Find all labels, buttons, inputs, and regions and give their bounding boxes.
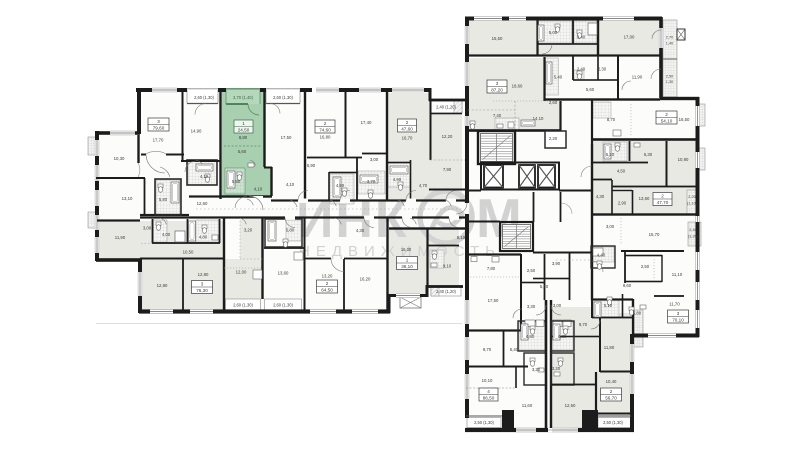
- svg-text:12,20: 12,20: [442, 134, 453, 139]
- svg-text:87,20: 87,20: [491, 88, 503, 93]
- svg-text:2,90: 2,90: [618, 201, 627, 206]
- svg-text:11,90: 11,90: [115, 235, 126, 240]
- svg-text:1: 1: [406, 257, 409, 262]
- svg-text:12,00: 12,00: [236, 270, 247, 275]
- svg-text:7,90: 7,90: [443, 167, 452, 172]
- svg-text:10,50: 10,50: [183, 250, 194, 255]
- svg-text:17,40: 17,40: [361, 120, 372, 125]
- svg-text:5,80: 5,80: [232, 179, 241, 184]
- svg-text:11,60: 11,60: [522, 403, 533, 408]
- svg-text:5,60: 5,60: [586, 87, 595, 92]
- svg-text:18,60: 18,60: [512, 84, 523, 89]
- svg-text:2,30: 2,30: [598, 67, 607, 72]
- svg-text:47,70: 47,70: [657, 200, 669, 205]
- svg-text:4,50: 4,50: [617, 169, 626, 174]
- svg-text:1,40: 1,40: [666, 42, 673, 46]
- svg-text:2: 2: [661, 193, 664, 198]
- svg-text:4,80: 4,80: [558, 334, 567, 339]
- svg-text:2: 2: [324, 121, 327, 126]
- svg-text:2,50 (1,30): 2,50 (1,30): [603, 420, 623, 425]
- svg-text:2: 2: [326, 281, 329, 286]
- svg-text:4,80: 4,80: [199, 235, 208, 240]
- svg-text:2,40: 2,40: [577, 67, 586, 72]
- svg-text:2,50: 2,50: [641, 264, 650, 269]
- svg-text:10,10: 10,10: [482, 378, 493, 383]
- svg-text:4,70: 4,70: [419, 183, 428, 188]
- svg-text:17,70: 17,70: [153, 138, 164, 143]
- svg-text:14,10: 14,10: [533, 116, 544, 121]
- svg-text:11,70: 11,70: [669, 302, 680, 307]
- svg-text:5,80: 5,80: [159, 197, 168, 202]
- svg-text:16,50: 16,50: [679, 117, 690, 122]
- svg-text:5,10: 5,10: [604, 303, 613, 308]
- svg-text:15,50: 15,50: [492, 36, 503, 41]
- svg-text:8,70: 8,70: [607, 117, 616, 122]
- svg-text:9,10: 9,10: [443, 264, 452, 269]
- svg-text:12,80: 12,80: [198, 272, 209, 277]
- svg-text:1,30: 1,30: [666, 80, 673, 84]
- svg-text:5,80: 5,80: [286, 228, 295, 233]
- svg-text:5,40: 5,40: [540, 284, 549, 289]
- svg-text:4,80: 4,80: [526, 334, 535, 339]
- svg-text:2: 2: [406, 120, 409, 125]
- svg-text:13,60: 13,60: [278, 271, 289, 276]
- svg-text:2,50: 2,50: [666, 75, 673, 79]
- svg-text:13,60: 13,60: [639, 196, 650, 201]
- svg-text:2,70: 2,70: [666, 36, 673, 40]
- svg-text:10,90: 10,90: [678, 157, 689, 162]
- svg-text:3,00: 3,00: [606, 224, 615, 229]
- svg-text:2,40: 2,40: [689, 228, 696, 232]
- svg-text:54,10: 54,10: [661, 119, 673, 124]
- svg-text:3: 3: [496, 81, 499, 86]
- svg-text:5,40: 5,40: [510, 347, 519, 352]
- svg-text:36,10: 36,10: [401, 264, 413, 269]
- svg-text:3,20: 3,20: [552, 366, 561, 371]
- svg-text:4,30: 4,30: [596, 194, 605, 199]
- svg-text:(1,20): (1,20): [688, 235, 699, 239]
- svg-text:12,50: 12,50: [565, 403, 576, 408]
- svg-text:4,00: 4,00: [162, 232, 171, 237]
- svg-text:4,30: 4,30: [356, 228, 365, 233]
- svg-text:2,70 (1,40): 2,70 (1,40): [233, 95, 253, 100]
- svg-text:4,40: 4,40: [597, 253, 606, 258]
- svg-text:74,60: 74,60: [319, 128, 331, 133]
- svg-text:(1,10): (1,10): [687, 202, 698, 206]
- svg-text:3,70: 3,70: [367, 179, 376, 184]
- svg-text:2,20: 2,20: [549, 136, 558, 141]
- svg-text:5,40: 5,40: [554, 75, 563, 80]
- svg-text:3: 3: [677, 311, 680, 316]
- svg-text:64,50: 64,50: [321, 288, 333, 293]
- svg-text:3,20: 3,20: [532, 367, 541, 372]
- svg-text:70,10: 70,10: [672, 318, 684, 323]
- svg-text:12,60: 12,60: [197, 201, 208, 206]
- svg-text:3,30: 3,30: [527, 304, 536, 309]
- svg-text:16,80: 16,80: [320, 135, 331, 140]
- svg-text:16,30: 16,30: [401, 247, 412, 252]
- svg-text:4: 4: [487, 389, 490, 394]
- svg-text:8,80: 8,80: [239, 135, 248, 140]
- svg-text:3,00: 3,00: [553, 303, 562, 308]
- svg-text:11,90: 11,90: [632, 75, 643, 80]
- svg-text:5,90: 5,90: [307, 163, 316, 168]
- svg-text:13,20: 13,20: [322, 274, 333, 279]
- svg-text:2,60 (1,30): 2,60 (1,30): [273, 303, 293, 308]
- svg-text:7,80: 7,80: [487, 266, 496, 271]
- svg-text:79,60: 79,60: [153, 126, 165, 131]
- svg-text:3: 3: [157, 119, 160, 124]
- svg-text:2: 2: [610, 389, 613, 394]
- svg-text:5,10: 5,10: [606, 152, 615, 157]
- svg-text:13,10: 13,10: [122, 196, 133, 201]
- svg-text:9,70: 9,70: [579, 322, 588, 327]
- svg-text:56,70: 56,70: [605, 396, 617, 401]
- svg-text:9,60: 9,60: [623, 283, 632, 288]
- svg-text:76,30: 76,30: [196, 288, 208, 293]
- svg-text:4,90: 4,90: [336, 183, 345, 188]
- svg-text:10,40: 10,40: [606, 379, 617, 384]
- svg-text:5,30: 5,30: [644, 152, 653, 157]
- svg-text:3,40: 3,40: [577, 35, 586, 40]
- svg-text:2,60 (1,30): 2,60 (1,30): [194, 95, 214, 100]
- svg-text:2,20: 2,20: [688, 195, 695, 199]
- svg-text:2,50 (1,30): 2,50 (1,30): [474, 420, 494, 425]
- svg-text:10,30: 10,30: [114, 156, 125, 161]
- svg-text:5,10: 5,10: [457, 235, 466, 240]
- svg-text:4,90: 4,90: [393, 177, 402, 182]
- svg-text:2,60 (1,30): 2,60 (1,30): [233, 303, 253, 308]
- svg-text:2: 2: [665, 112, 668, 117]
- svg-text:3: 3: [201, 281, 204, 286]
- svg-text:16,70: 16,70: [402, 136, 413, 141]
- svg-text:24,50: 24,50: [238, 128, 250, 133]
- svg-text:3,00: 3,00: [370, 157, 379, 162]
- svg-text:1: 1: [242, 121, 245, 126]
- svg-text:5,60: 5,60: [238, 149, 247, 154]
- svg-text:2,40 (1,20): 2,40 (1,20): [436, 105, 456, 110]
- svg-text:11,80: 11,80: [604, 345, 615, 350]
- svg-text:2,60 (1,30): 2,60 (1,30): [273, 95, 293, 100]
- svg-text:7,40: 7,40: [493, 113, 502, 118]
- svg-text:17,50: 17,50: [488, 298, 499, 303]
- svg-text:17,00: 17,00: [624, 35, 635, 40]
- svg-text:4,10: 4,10: [200, 174, 209, 179]
- svg-text:3,20: 3,20: [244, 228, 253, 233]
- svg-text:3,00: 3,00: [143, 226, 152, 231]
- svg-text:5,00: 5,00: [549, 30, 558, 35]
- svg-text:17,50: 17,50: [281, 135, 292, 140]
- svg-text:16,20: 16,20: [360, 277, 371, 282]
- svg-text:15,70: 15,70: [649, 232, 660, 237]
- svg-text:14,90: 14,90: [191, 129, 202, 134]
- svg-text:12,80: 12,80: [157, 283, 168, 288]
- svg-text:2,50: 2,50: [527, 268, 536, 273]
- svg-text:86,50: 86,50: [483, 396, 495, 401]
- svg-text:5,80: 5,80: [633, 311, 642, 316]
- svg-text:47,60: 47,60: [401, 127, 413, 132]
- svg-text:2,60: 2,60: [549, 100, 558, 105]
- svg-text:3,90: 3,90: [552, 261, 561, 266]
- svg-text:4,10: 4,10: [254, 187, 263, 192]
- svg-text:4,10: 4,10: [286, 182, 295, 187]
- svg-text:9,70: 9,70: [483, 347, 492, 352]
- svg-text:11,10: 11,10: [672, 272, 683, 277]
- svg-text:2,40 (1,20): 2,40 (1,20): [436, 289, 456, 294]
